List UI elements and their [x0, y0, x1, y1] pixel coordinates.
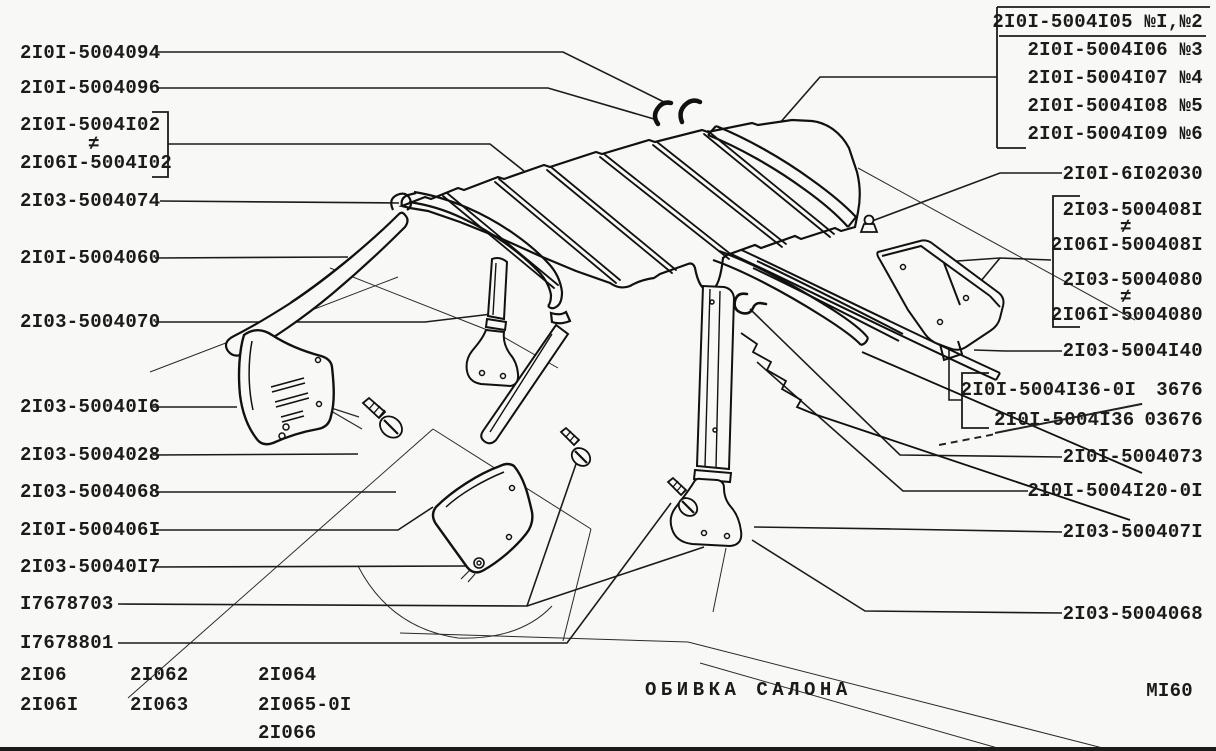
part-label: 2I0I-5004I07 №4	[1027, 68, 1203, 88]
part-label: 2I0I-5004I06 №3	[1027, 40, 1203, 60]
part-label: 2I03-5004068	[20, 482, 160, 502]
part-label: 2I0I-6I02030	[1063, 164, 1203, 184]
sheet-code: МI60	[1146, 681, 1193, 701]
part-label: 2I06I-500408I	[1051, 235, 1203, 255]
screw-front	[363, 398, 406, 442]
part-label: I7678703	[20, 594, 114, 614]
parts-catalog-sheet: { "page": {"background": "#f8f8f6", "ink…	[0, 0, 1216, 751]
part-label: 2I03-5004028	[20, 445, 160, 465]
model-code: 2I06I	[20, 695, 79, 715]
revision-note: 03676	[1144, 409, 1203, 431]
front-quarter-trim-panel	[239, 330, 334, 444]
part-number: 2I0I-5004I36-0I	[961, 379, 1137, 401]
part-label: 2I03-50040I7	[20, 557, 160, 577]
model-code: 2I062	[130, 665, 189, 685]
model-code: 2I063	[130, 695, 189, 715]
coat-hook	[735, 294, 766, 314]
not-interchangeable-symbol: ≠	[88, 134, 100, 154]
roof-clips	[655, 101, 700, 124]
model-code: 2I06	[20, 665, 67, 685]
part-label: 2I06I-5004080	[1051, 305, 1203, 325]
part-label: I7678801	[20, 633, 114, 653]
model-code: 2I065-0I	[258, 695, 352, 715]
left-b-pillar-trim	[467, 258, 519, 386]
part-label: 2I0I-5004073	[1063, 447, 1203, 467]
model-code: 2I064	[258, 665, 317, 685]
screw-middle	[561, 428, 594, 470]
part-label: 2I03-5004080	[1063, 270, 1203, 290]
part-label: 2I0I-5004096	[20, 78, 160, 98]
rear-rivet-clip	[861, 216, 877, 233]
part-label: 2I0I-5004094	[20, 43, 160, 63]
part-label: 2I03-5004074	[20, 191, 160, 211]
part-label: 2I03-500407I	[1063, 522, 1203, 542]
part-label: 2I03-5004068	[1063, 604, 1203, 624]
rear-quarter-trim-panel	[433, 464, 532, 572]
revision-note: 3676	[1156, 379, 1203, 401]
part-label: 2I03-5004I40	[1063, 341, 1203, 361]
part-label: 2I06I-5004I02	[20, 153, 172, 173]
part-label: 2I03-50040I6	[20, 397, 160, 417]
part-label: 2I0I-5004I08 №5	[1027, 96, 1203, 116]
part-label: 2I0I-500406I	[20, 520, 160, 540]
scan-edge	[0, 747, 1216, 751]
model-code: 2I066	[258, 723, 317, 743]
part-label: 2I0I-5004060	[20, 248, 160, 268]
part-label: 2I0I-5004I20-0I	[1027, 481, 1203, 501]
part-label: 2I03-500408I	[1063, 200, 1203, 220]
part-label-with-note: 2I0I-5004I36-0I3676	[961, 380, 1203, 400]
part-label: 2I03-5004070	[20, 312, 160, 332]
part-label: 2I0I-5004I09 №6	[1027, 124, 1203, 144]
part-label: 2I0I-5004I05 №I,№2	[992, 12, 1203, 32]
part-label: 2I0I-5004I02	[20, 115, 160, 135]
sheet-title: ОБИВКА САЛОНА	[645, 680, 852, 700]
